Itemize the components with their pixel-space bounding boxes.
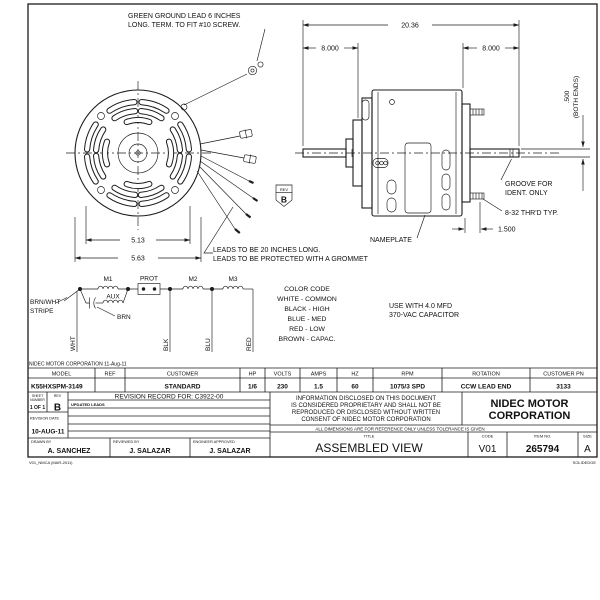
groove-leader (501, 159, 512, 180)
value-hz: 60 (351, 384, 359, 391)
col-header-customer-pn: CUSTOMER PN (543, 372, 584, 378)
item-label: ITEM NO. (534, 434, 552, 439)
col-header-hp: HP (249, 372, 257, 378)
color-code-black: BLACK - HIGH (284, 306, 329, 313)
capacitor-note-line1: USE WITH 4.0 MFD (389, 303, 452, 310)
thread-note: 8-32 THR'D TYP. (505, 210, 558, 217)
revision-record-header: REVISION RECORD FOR: C3922-00 (115, 394, 224, 401)
dim-bolt-circle: 5.13 (131, 238, 145, 245)
label-wht: WHT (70, 336, 77, 351)
company-name-line1: NIDEC MOTOR (490, 398, 568, 410)
code-label: CODE (482, 434, 494, 439)
proprietary-line1: INFORMATION DISCLOSED ON THIS DOCUMENT (296, 396, 436, 402)
value-model: K55HXSPM-3149 (31, 384, 83, 391)
drawing-canvas: REV B 5.13 5.63 (0, 0, 600, 600)
thread-leader (483, 199, 502, 211)
groove-note-line1: GROOVE FOR (505, 181, 552, 188)
col-header-model: MODEL (52, 372, 72, 378)
value-volts: 230 (277, 384, 288, 391)
label-blk: BLK (163, 338, 170, 351)
label-aux: AUX (106, 294, 120, 301)
body-vent-slots (362, 100, 450, 213)
code-value: V01 (479, 444, 497, 455)
capacitor-plate-curved (94, 298, 96, 309)
nameplate-rect (405, 143, 431, 213)
proprietary-statement: INFORMATION DISCLOSED ON THIS DOCUMENT I… (291, 396, 441, 423)
col-header-rotation: ROTATION (472, 372, 500, 378)
rev-flag-label: REV (280, 187, 289, 192)
color-code-brown: BROWN - CAPAC. (279, 336, 336, 343)
coil-aux (103, 300, 123, 303)
leads-note-line1: LEADS TO BE 20 INCHES LONG. (213, 247, 321, 254)
label-brn: BRN (117, 314, 131, 321)
reviewed-by: J. SALAZAR (129, 448, 170, 455)
label-brnwht-2: STRIPE (30, 308, 54, 315)
mounting-studs (470, 109, 484, 199)
size-label: SIZE (583, 434, 592, 439)
color-code-title: COLOR CODE (284, 286, 330, 293)
dim-shaft-diameter: .500 (564, 90, 571, 103)
dim-shaft-diameter-group: .500 (BOTH ENDS) (564, 76, 580, 118)
dim-stud-length: 1.500 (498, 227, 516, 234)
spec-table-values: K55HXSPM-3149 STANDARD 1/6 230 1.5 60 10… (31, 384, 571, 391)
front-view-dimensions (75, 206, 201, 262)
label-red: RED (246, 337, 253, 351)
revision-date-label: REVISION DATE (30, 417, 60, 421)
lead-grommet (373, 159, 388, 168)
drawn-by-label: DRAWN BY (31, 440, 52, 444)
nameplate-leader (417, 215, 425, 238)
col-header-rpm: RPM (401, 372, 414, 378)
form-id: V01_NMCA (MAR-2011) (29, 460, 73, 465)
revision-flag: REV B (276, 185, 292, 207)
proprietary-line2: IS CONSIDERED PROPRIETARY AND SHALL NOT … (291, 403, 441, 409)
leads-note-line2: LEADS TO BE PROTECTED WITH A GROMMET (213, 256, 369, 263)
ground-note-line2: LONG. TERM. TO FIT #10 SCREW. (128, 22, 240, 29)
rev-label: REV (54, 394, 62, 398)
proprietary-line4: CONSENT OF NIDEC MOTOR CORPORATION (301, 417, 430, 423)
rev-flag-value: B (281, 195, 287, 205)
dim-shaft-right: 8.000 (482, 46, 500, 53)
tolerance-note: ALL DIMENSIONS ARE FOR REFERENCE ONLY UN… (315, 427, 484, 432)
aux-branch (80, 289, 90, 303)
engineering-drawing-sheet: REV B 5.13 5.63 (0, 0, 600, 600)
wiring-schematic (56, 284, 253, 353)
rev-value: B (54, 403, 61, 414)
revision-date: 10-AUG-11 (32, 429, 65, 436)
size-value: A (584, 444, 591, 455)
color-code-blue: BLUE - MED (288, 316, 327, 323)
approved-label: ENGINEER APPROVED (193, 440, 235, 444)
value-rotation: CCW LEAD END (461, 384, 512, 391)
dim-shaft-left: 8.000 (321, 46, 339, 53)
spade-connector (239, 129, 256, 163)
label-blu: BLU (205, 338, 212, 351)
drawn-by: A. SANCHEZ (48, 448, 92, 455)
cad-note: SOLIDEDGE (573, 460, 597, 465)
groove-note-line2: IDENT. ONLY (505, 190, 548, 197)
dim-overall-length: 20.36 (401, 23, 419, 30)
label-brnwht-1: BRN/WHT (30, 299, 60, 306)
brn-leader (97, 307, 115, 316)
capacitor-note-line2: 370-VAC CAPACITOR (389, 312, 459, 319)
color-code-white: WHITE - COMMON (277, 296, 337, 303)
reviewed-by-label: REVIEWED BY (113, 440, 140, 444)
item-number: 265794 (526, 444, 560, 455)
col-header-ref: REF (105, 372, 117, 378)
sheet-label-line2: NUMBER (30, 398, 45, 402)
switch-arm (64, 289, 80, 301)
revision-entry: UPDATED LEADS (71, 402, 105, 407)
drawing-title: ASSEMBLED VIEW (315, 441, 423, 455)
spec-table-headers: MODEL REF CUSTOMER HP VOLTS AMPS HZ RPM … (52, 372, 584, 378)
ground-lead (184, 29, 265, 105)
sheet-number: 1 OF 1 (30, 405, 46, 411)
label-m3: M3 (228, 276, 237, 283)
coil-m2 (183, 286, 203, 289)
nameplate-label: NAMEPLATE (370, 237, 412, 244)
label-m2: M2 (188, 276, 197, 283)
motor-leads (184, 29, 265, 253)
label-m1: M1 (103, 276, 112, 283)
value-amps: 1.5 (314, 384, 323, 391)
label-prot: PROT (140, 276, 158, 283)
protector-box (138, 284, 160, 295)
value-customer-pn: 3133 (556, 384, 571, 391)
col-header-customer: CUSTOMER (167, 372, 198, 378)
col-header-volts: VOLTS (274, 372, 292, 378)
corp-date-note: NIDEC MOTOR CORPORATION 11-Aug-11 (29, 362, 127, 368)
title-label: TITLE (364, 434, 375, 439)
approved-by: J. SALAZAR (209, 448, 250, 455)
col-header-hz: HZ (351, 372, 359, 378)
col-header-amps: AMPS (311, 372, 327, 378)
coil-m3 (223, 286, 243, 289)
dim-shaft-diameter-note: (BOTH ENDS) (573, 76, 580, 118)
value-customer: STANDARD (165, 384, 201, 391)
value-hp: 1/6 (248, 384, 257, 391)
proprietary-line3: REPRODUCED OR DISCLOSED WITHOUT WRITTEN (292, 410, 440, 416)
company-name-line2: CORPORATION (489, 410, 571, 422)
coil-m1 (98, 286, 118, 289)
ground-note-line1: GREEN GROUND LEAD 6 INCHES (128, 13, 241, 20)
color-code-block: COLOR CODE WHITE - COMMON BLACK - HIGH B… (277, 286, 337, 343)
value-rpm: 1075/3 SPD (390, 384, 425, 391)
dim-shell-diameter: 5.63 (131, 256, 145, 263)
side-view-dimensions (303, 20, 590, 238)
color-code-red: RED - LOW (289, 326, 325, 333)
